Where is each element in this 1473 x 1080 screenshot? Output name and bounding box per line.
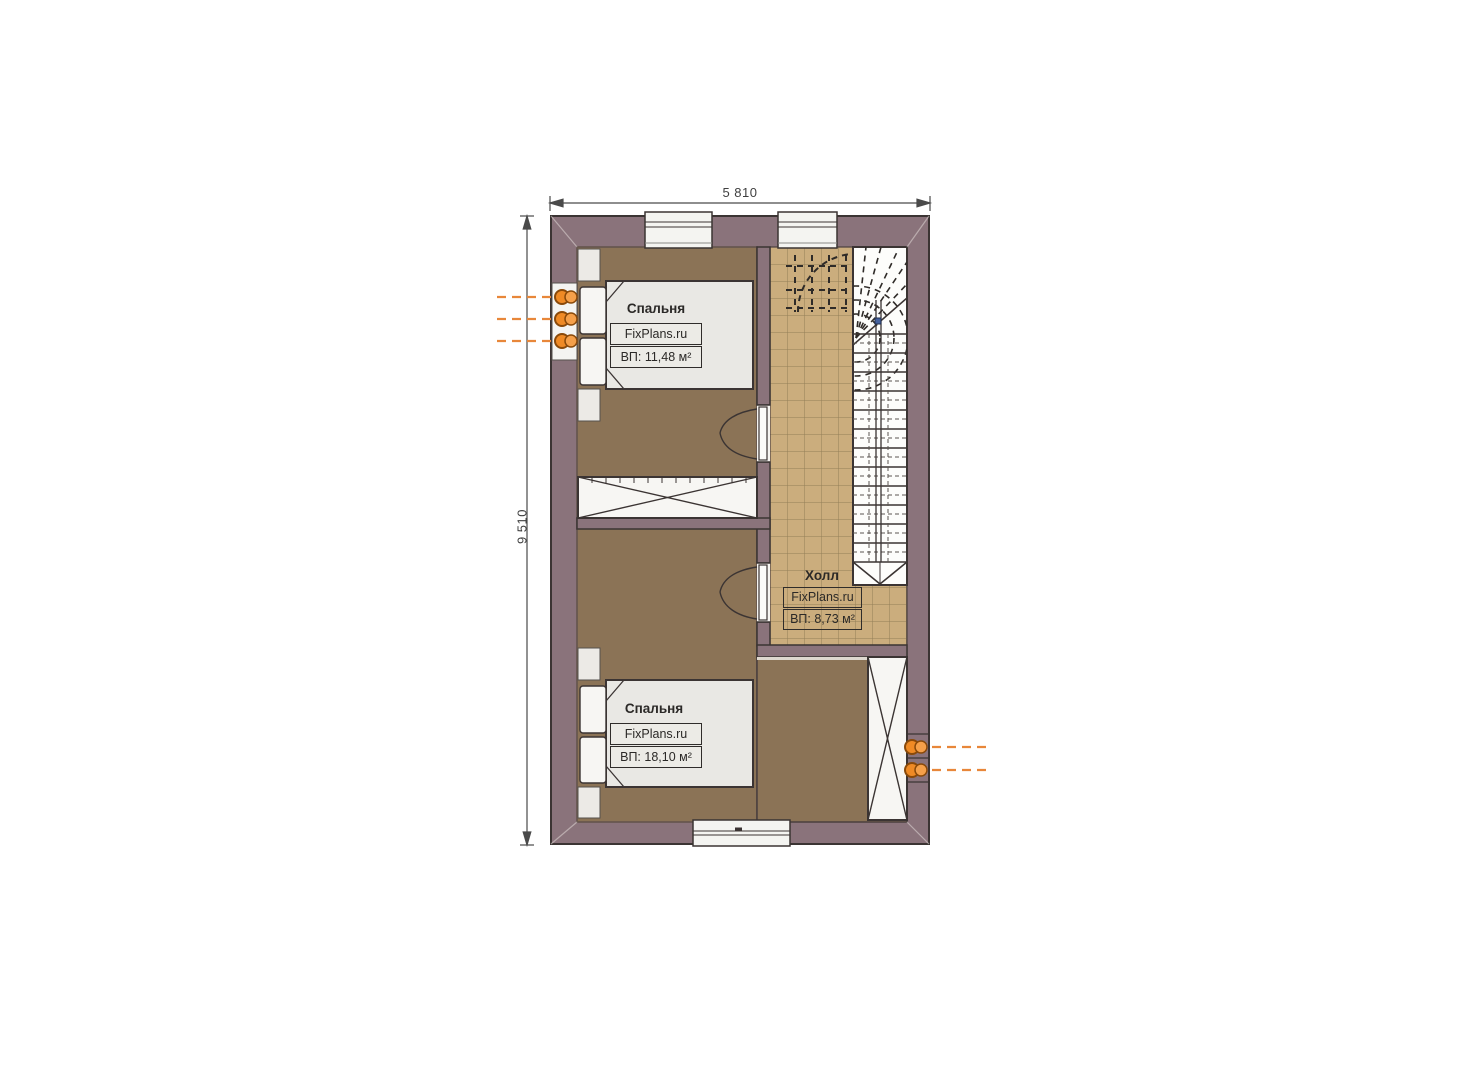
- dimension-height-label: 9 510: [515, 467, 530, 587]
- pillow: [580, 686, 606, 733]
- room-area-bedroom-1: ВП: 11,48 м²: [610, 346, 702, 368]
- dimension-width-label: 5 810: [550, 185, 930, 200]
- room-area-bedroom-2: ВП: 18,10 м²: [610, 746, 702, 768]
- room-area-hall: ВП: 8,73 м²: [783, 609, 862, 630]
- stair-node-marker: [875, 318, 881, 324]
- window-top-1: [645, 212, 712, 248]
- nightstand: [578, 389, 600, 421]
- pillow: [580, 338, 606, 385]
- pillow: [580, 737, 606, 783]
- radiator-icon: [555, 312, 577, 326]
- room-title-hall: Холл: [782, 568, 862, 583]
- floor-plan-canvas: 5 810 9 510 Спальня FixPlans.ru ВП: 11,4…: [0, 0, 1473, 1080]
- room-title-bedroom-2: Спальня: [604, 701, 704, 716]
- nightstand: [578, 249, 600, 281]
- radiator-icon: [555, 290, 577, 304]
- watermark-hall: FixPlans.ru: [783, 587, 862, 608]
- nightstand: [578, 787, 600, 818]
- wardrobe-bedroom-2: [868, 657, 907, 820]
- radiator-icons-right: [905, 734, 992, 782]
- radiator-icon: [555, 334, 577, 348]
- wardrobe-center: [578, 477, 757, 518]
- nightstand: [578, 648, 600, 680]
- floor-plan-drawing: [0, 0, 1473, 1080]
- radiator-icon: [905, 763, 927, 777]
- room-title-bedroom-1: Спальня: [606, 301, 706, 316]
- radiator-icons-left: [497, 290, 577, 348]
- pillow: [580, 287, 606, 334]
- window-top-2: [778, 212, 837, 248]
- radiator-icon: [905, 740, 927, 754]
- watermark-bedroom-2: FixPlans.ru: [610, 723, 702, 745]
- window-bottom: [693, 820, 790, 846]
- watermark-bedroom-1: FixPlans.ru: [610, 323, 702, 345]
